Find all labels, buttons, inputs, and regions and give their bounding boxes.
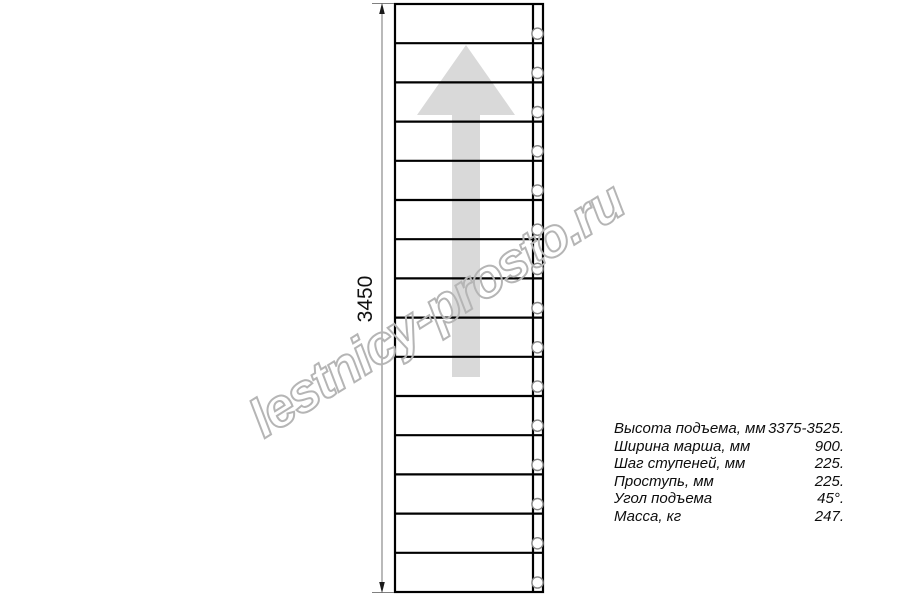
spec-row: Ширина марша, мм 900. (614, 438, 844, 456)
spec-row: Проступь, мм 225. (614, 473, 844, 491)
tread-fastener-circle (532, 28, 543, 39)
tread-fastener-circle (532, 499, 543, 510)
dim-arrow-bottom-icon (379, 582, 385, 593)
tread-fastener-circle (532, 577, 543, 588)
tread-fastener-circle (532, 342, 543, 353)
dimension-label: 3450 (354, 276, 377, 323)
spec-value: 900. (815, 438, 844, 456)
tread-fastener-circle (532, 420, 543, 431)
spec-row: Масса, кг 247. (614, 508, 844, 526)
spec-value: 225. (815, 455, 844, 473)
spec-row: Шаг ступеней, мм 225. (614, 455, 844, 473)
spec-label: Высота подъема, мм (614, 420, 766, 438)
tread-fastener-circle (532, 459, 543, 470)
spec-label: Проступь, мм (614, 473, 714, 491)
spec-row: Угол подъема 45°. (614, 490, 844, 508)
tread-fastener-circle (532, 224, 543, 235)
tread-fastener-circle (532, 538, 543, 549)
tread-fastener-circle (532, 185, 543, 196)
tread-circles (532, 28, 543, 588)
spec-row: Высота подъема, мм 3375-3525. (614, 420, 844, 438)
spec-value: 225. (815, 473, 844, 491)
specs-table: Высота подъема, мм 3375-3525. Ширина мар… (614, 420, 844, 526)
spec-label: Масса, кг (614, 508, 681, 526)
tread-fastener-circle (532, 303, 543, 314)
tread-fastener-circle (532, 263, 543, 274)
spec-label: Ширина марша, мм (614, 438, 750, 456)
up-arrow (417, 45, 515, 377)
dim-arrow-top-icon (379, 3, 385, 14)
spec-value: 247. (815, 508, 844, 526)
tread-fastener-circle (532, 146, 543, 157)
staircase-drawing-page: 3450 lestnicy-prosto.ru Высота подъема, … (0, 0, 900, 600)
spec-value: 45°. (817, 490, 844, 508)
tread-fastener-circle (532, 67, 543, 78)
tread-fastener-circle (532, 381, 543, 392)
tread-fastener-circle (532, 107, 543, 118)
spec-label: Угол подъема (614, 490, 712, 508)
spec-value: 3375-3525. (768, 420, 844, 438)
spec-label: Шаг ступеней, мм (614, 455, 745, 473)
